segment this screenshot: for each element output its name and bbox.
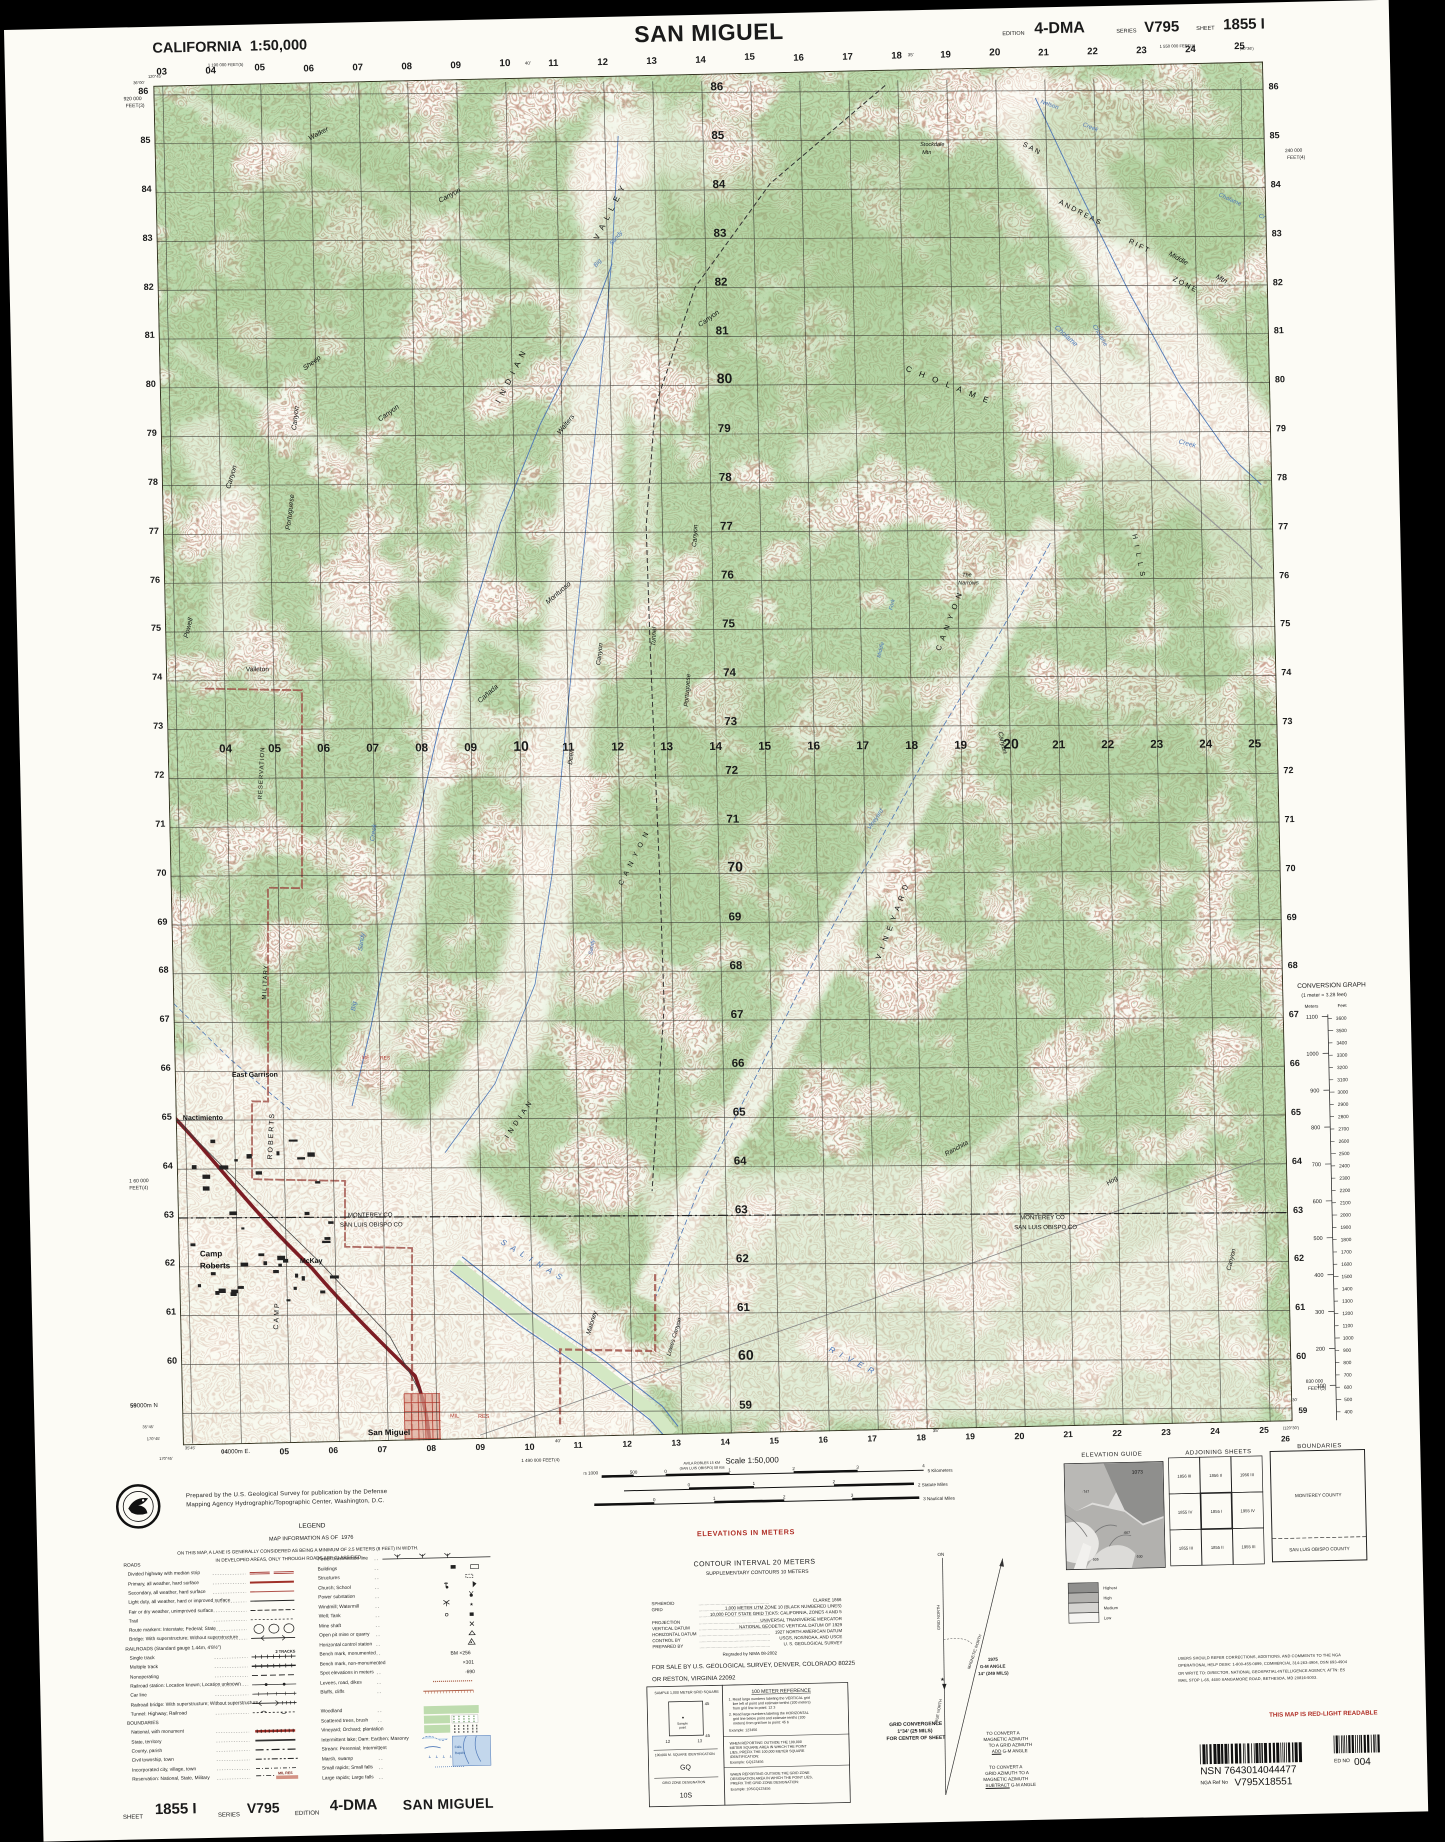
svg-text:600: 600 <box>1313 1199 1322 1205</box>
svg-text:1600: 1600 <box>1341 1262 1352 1268</box>
svg-text:1900: 1900 <box>1340 1225 1351 1231</box>
svg-text:68: 68 <box>729 960 743 972</box>
svg-text:1400: 1400 <box>1342 1286 1353 1292</box>
svg-text:19: 19 <box>954 740 967 752</box>
svg-text:65: 65 <box>733 1107 747 1119</box>
svg-text:100: 100 <box>1317 1383 1326 1389</box>
svg-text:61: 61 <box>737 1302 751 1314</box>
svg-text:60: 60 <box>738 1347 754 1363</box>
svg-text:1000: 1000 <box>1343 1335 1354 1341</box>
svg-text:70: 70 <box>727 858 743 874</box>
svg-text:0: 0 <box>653 1497 656 1502</box>
svg-text:24: 24 <box>1199 739 1213 751</box>
svg-text:1855 II: 1855 II <box>1211 1545 1224 1550</box>
svg-text:IDENTIFICATION:: IDENTIFICATION: <box>730 1754 759 1759</box>
svg-text:300: 300 <box>1315 1310 1324 1316</box>
svg-text:Stockdale: Stockdale <box>920 142 944 148</box>
svg-text:1856 III: 1856 III <box>1177 1473 1191 1478</box>
svg-text:2900: 2900 <box>1338 1102 1349 1108</box>
svg-text:G-M ANGLE: G-M ANGLE <box>980 1664 1006 1670</box>
svg-text:3600: 3600 <box>1336 1016 1347 1022</box>
svg-text:3300: 3300 <box>1337 1053 1348 1059</box>
svg-text:004: 004 <box>1354 1757 1371 1768</box>
svg-text:1855 I: 1855 I <box>1211 1509 1223 1514</box>
svg-text:5 Kilometers: 5 Kilometers <box>928 1468 954 1474</box>
svg-text:Meters 1000: Meters 1000 <box>584 1470 599 1476</box>
svg-text:V795X18551: V795X18551 <box>1234 1776 1292 1788</box>
svg-text:Highest: Highest <box>1103 1585 1118 1590</box>
svg-text:1: 1 <box>753 1481 756 1486</box>
svg-text:900: 900 <box>1310 1088 1319 1094</box>
svg-text:Canyon: Canyon <box>691 524 699 547</box>
svg-text:·690: ·690 <box>465 1669 475 1675</box>
svg-text:2700: 2700 <box>1338 1126 1349 1132</box>
svg-text:3000: 3000 <box>1337 1090 1348 1096</box>
svg-text:2600: 2600 <box>1339 1139 1350 1145</box>
svg-text:10S: 10S <box>680 1792 693 1799</box>
svg-text:1975: 1975 <box>988 1657 999 1662</box>
svg-text:1200: 1200 <box>1342 1311 1353 1317</box>
svg-text:22: 22 <box>1101 739 1114 751</box>
svg-text:73: 73 <box>724 716 737 728</box>
svg-text:76: 76 <box>721 569 734 581</box>
svg-text:1700: 1700 <box>1341 1249 1352 1255</box>
svg-text:600: 600 <box>1344 1385 1352 1391</box>
svg-text:·505: ·505 <box>1092 1557 1099 1561</box>
svg-text:800: 800 <box>1343 1360 1351 1366</box>
svg-text:78: 78 <box>719 472 733 484</box>
svg-text:45: 45 <box>705 1733 710 1738</box>
svg-text:79: 79 <box>718 423 731 435</box>
svg-text:62: 62 <box>736 1253 749 1265</box>
svg-text:Example: 123456: Example: 123456 <box>729 1728 757 1733</box>
svg-text:1856 II: 1856 II <box>1209 1473 1222 1478</box>
svg-text:SAMPLE 1,000 METER GRID SQUARE: SAMPLE 1,000 METER GRID SQUARE <box>654 1690 719 1695</box>
svg-text:·667: ·667 <box>1123 1531 1130 1535</box>
svg-text:0: 0 <box>664 1469 667 1474</box>
svg-text:★: ★ <box>940 1677 945 1683</box>
svg-text:1300: 1300 <box>1342 1299 1353 1305</box>
svg-text:72: 72 <box>725 765 738 777</box>
svg-text:ON: ON <box>937 1552 944 1557</box>
svg-text:2: 2 <box>783 1494 786 1499</box>
svg-text:0: 0 <box>688 1482 691 1487</box>
svg-text:MIL: MIL <box>450 1414 459 1420</box>
svg-text:1955 IV: 1955 IV <box>1240 1508 1255 1513</box>
svg-text:66: 66 <box>732 1058 745 1070</box>
svg-text:1: 1 <box>713 1496 716 1501</box>
svg-text:NSN 7643014044477: NSN 7643014044477 <box>1200 1764 1297 1777</box>
svg-text:SAN LUIS OBISPO COUNTY: SAN LUIS OBISPO COUNTY <box>1289 1546 1350 1552</box>
svg-text:1800: 1800 <box>1341 1237 1352 1243</box>
svg-text:★: ★ <box>469 1602 474 1607</box>
svg-text:Narrows: Narrows <box>958 580 979 586</box>
svg-text:3: 3 <box>851 1493 854 1498</box>
svg-text:East Garrison: East Garrison <box>232 1072 278 1079</box>
svg-text:McKay: McKay <box>300 1258 323 1265</box>
svg-text:1073: 1073 <box>1132 1469 1143 1475</box>
svg-text:100,000 M. SQUARE IDENTIFICATI: 100,000 M. SQUARE IDENTIFICATION <box>655 1752 715 1757</box>
svg-text:400: 400 <box>1344 1409 1352 1415</box>
svg-text:2: 2 <box>833 1479 836 1484</box>
svg-text:500: 500 <box>630 1470 638 1475</box>
svg-text:13: 13 <box>660 741 673 753</box>
svg-text:SAN LUIS OBISPO CO: SAN LUIS OBISPO CO <box>1014 1225 1077 1231</box>
svg-text:1100: 1100 <box>1306 1015 1318 1021</box>
svg-text:1100: 1100 <box>1343 1323 1354 1329</box>
svg-text:16: 16 <box>807 740 820 752</box>
svg-text:700: 700 <box>1312 1162 1321 1168</box>
svg-text:Mtn: Mtn <box>922 150 931 156</box>
svg-text:Camp: Camp <box>200 1249 223 1258</box>
svg-text:Nactimiento: Nactimiento <box>183 1115 223 1122</box>
svg-text:81: 81 <box>716 325 730 337</box>
svg-text:17: 17 <box>856 740 869 752</box>
svg-text:·530: ·530 <box>1136 1555 1143 1559</box>
svg-text:07: 07 <box>366 743 379 755</box>
svg-text:59: 59 <box>739 1400 752 1412</box>
svg-text:Valleton: Valleton <box>246 666 270 673</box>
svg-text:Big: Big <box>350 1001 358 1012</box>
svg-text:500: 500 <box>1344 1397 1352 1403</box>
svg-text:84: 84 <box>712 179 726 191</box>
svg-text:×301: ×301 <box>463 1660 475 1666</box>
svg-text:05: 05 <box>268 743 282 755</box>
svg-text:08: 08 <box>415 742 429 754</box>
svg-text:1000: 1000 <box>1306 1051 1318 1057</box>
svg-text:RES: RES <box>380 1055 391 1061</box>
svg-text:3: 3 <box>856 1465 859 1470</box>
svg-text:77: 77 <box>720 521 733 533</box>
svg-text:Medium: Medium <box>1104 1605 1119 1610</box>
svg-text:74: 74 <box>723 667 737 679</box>
svg-text:2300: 2300 <box>1339 1176 1350 1182</box>
svg-text:3100: 3100 <box>1337 1077 1348 1083</box>
svg-text:2000: 2000 <box>1340 1212 1351 1218</box>
svg-text:MONTEREY CO: MONTEREY CO <box>1020 1215 1065 1221</box>
svg-text:1855 IV: 1855 IV <box>1178 1509 1193 1514</box>
svg-text:800: 800 <box>1311 1125 1320 1131</box>
svg-text:500: 500 <box>1313 1236 1322 1242</box>
svg-text:1500: 1500 <box>1341 1274 1352 1280</box>
svg-text:Example: 10SGQ123456: Example: 10SGQ123456 <box>731 1787 771 1792</box>
svg-text:71: 71 <box>726 814 740 826</box>
svg-text:2200: 2200 <box>1340 1188 1351 1194</box>
svg-text:200: 200 <box>1316 1347 1325 1353</box>
svg-text:PREFIX THE GRID ZONE DESIG: PREFIX THE GRID ZONE DESIGNATION: <box>730 1780 799 1785</box>
svg-text:Rapids: Rapids <box>455 1751 466 1755</box>
svg-text:NGA Ref No: NGA Ref No <box>1200 1780 1228 1787</box>
svg-text:900: 900 <box>1343 1348 1351 1354</box>
svg-text:15: 15 <box>758 741 772 753</box>
svg-text:ME: ME <box>362 1055 370 1061</box>
svg-text:3400: 3400 <box>1336 1040 1347 1046</box>
svg-text:23: 23 <box>1150 739 1163 751</box>
svg-text:18: 18 <box>905 740 919 752</box>
svg-text:04: 04 <box>219 743 233 755</box>
svg-text:3 Nautical Miles: 3 Nautical Miles <box>923 1496 956 1502</box>
svg-text:1955 III: 1955 III <box>1241 1544 1255 1549</box>
svg-text:64: 64 <box>734 1155 748 1167</box>
svg-text:2800: 2800 <box>1338 1114 1349 1120</box>
svg-text:75: 75 <box>722 618 736 630</box>
svg-text:MONTEREY CO: MONTEREY CO <box>348 1213 393 1219</box>
svg-text:MONTEREY COUNTY: MONTEREY COUNTY <box>1295 1492 1342 1498</box>
svg-text:700: 700 <box>1344 1372 1352 1378</box>
svg-text:3500: 3500 <box>1336 1028 1347 1034</box>
svg-text:14: 14 <box>709 741 723 753</box>
svg-text:63: 63 <box>735 1204 748 1216</box>
svg-text:13: 13 <box>697 1738 702 1743</box>
svg-text:3200: 3200 <box>1337 1065 1348 1071</box>
svg-text:80: 80 <box>717 370 733 386</box>
svg-text:Low: Low <box>1104 1615 1112 1620</box>
svg-text:69: 69 <box>728 911 741 923</box>
svg-text:CAMP: CAMP <box>273 1301 281 1330</box>
svg-text:Tunnel: Tunnel <box>650 626 658 646</box>
svg-text:82: 82 <box>715 277 728 289</box>
svg-text:83: 83 <box>713 228 726 240</box>
svg-text:1956 III: 1956 III <box>1240 1472 1254 1477</box>
svg-text:12: 12 <box>665 1739 670 1744</box>
svg-text:85: 85 <box>711 130 725 142</box>
svg-text:SAN LUIS OBISPO CO: SAN LUIS OBISPO CO <box>340 1222 403 1228</box>
svg-text:45: 45 <box>705 1701 710 1706</box>
svg-text:from grid line to point: 12 3: from grid line to point: 12 3 <box>733 1706 776 1711</box>
svg-text:High: High <box>1103 1595 1111 1600</box>
svg-text:2500: 2500 <box>1339 1151 1350 1157</box>
svg-text:meters) from grid line to poin: meters) from grid line to point: 45 6 <box>733 1720 789 1725</box>
svg-text:BM ×256: BM ×256 <box>450 1650 470 1656</box>
svg-text:Roberts: Roberts <box>200 1261 231 1270</box>
svg-text:San Miguel: San Miguel <box>368 1428 410 1437</box>
svg-text:LIES, PREFIX THE 100,000 M: LIES, PREFIX THE 100,000 METER SQUARE <box>730 1749 805 1755</box>
svg-text:400: 400 <box>1314 1273 1323 1279</box>
svg-text:100 METER REFERENCE: 100 METER REFERENCE <box>751 1688 811 1695</box>
svg-text:RES: RES <box>478 1414 490 1420</box>
svg-text:67: 67 <box>731 1009 744 1021</box>
svg-text:06: 06 <box>317 743 330 755</box>
svg-text:86: 86 <box>710 81 723 93</box>
svg-text:4: 4 <box>922 1463 925 1468</box>
svg-text:2400: 2400 <box>1339 1163 1350 1169</box>
svg-text:2 Statute Miles: 2 Statute Miles <box>918 1482 949 1488</box>
svg-text:GQ: GQ <box>680 1764 692 1771</box>
svg-text:point: point <box>679 1726 686 1730</box>
svg-text:Falls: Falls <box>455 1745 462 1749</box>
svg-text:1855 III: 1855 III <box>1179 1545 1193 1550</box>
svg-text:10: 10 <box>513 738 529 754</box>
svg-text:25: 25 <box>1248 738 1262 750</box>
svg-text:21: 21 <box>1052 739 1066 751</box>
svg-text:1: 1 <box>728 1467 731 1472</box>
svg-text:GRID ZONE DESIGNATION: GRID ZONE DESIGNATION <box>662 1780 706 1785</box>
svg-text:2: 2 <box>792 1466 795 1471</box>
svg-text:14° (249 MILS): 14° (249 MILS) <box>978 1670 1009 1676</box>
svg-text:12: 12 <box>611 741 624 753</box>
svg-text:GRID NORTH: GRID NORTH <box>936 1605 942 1630</box>
svg-text:The: The <box>962 573 972 579</box>
svg-text:2100: 2100 <box>1340 1200 1351 1206</box>
svg-text:Example: GQ123456: Example: GQ123456 <box>730 1760 764 1765</box>
svg-text:·747: ·747 <box>1082 1490 1089 1494</box>
svg-text:09: 09 <box>464 742 477 754</box>
svg-text:ED NO: ED NO <box>1334 1758 1350 1764</box>
